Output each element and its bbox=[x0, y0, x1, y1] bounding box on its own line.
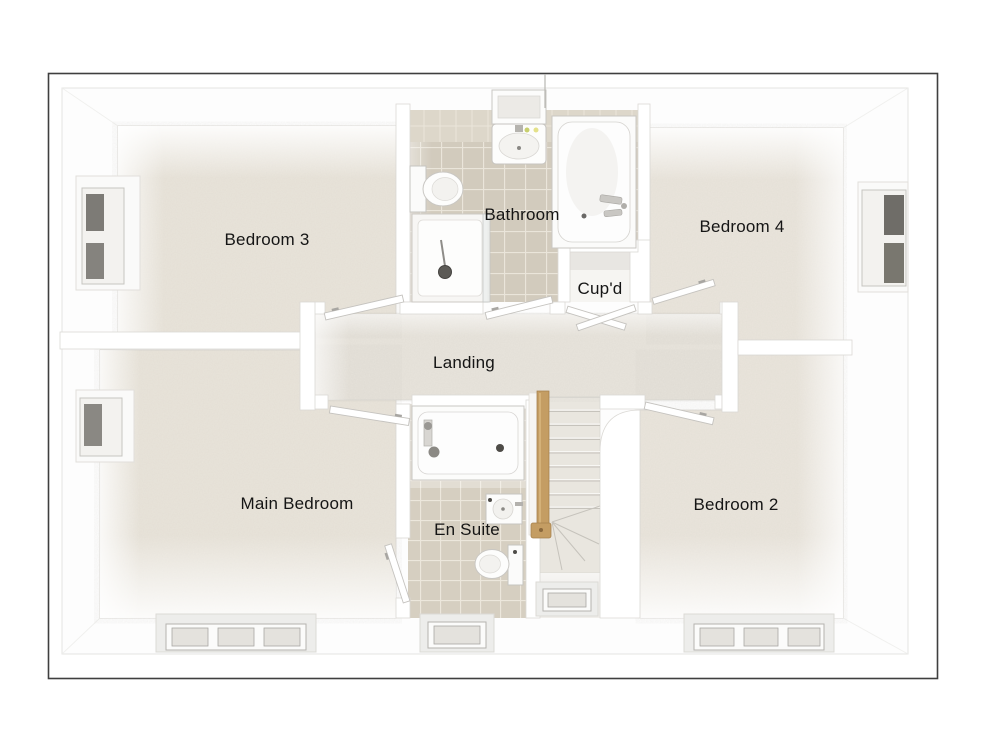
wall-cupboard-left bbox=[558, 248, 570, 302]
main-bedroom-front-window bbox=[156, 614, 316, 652]
bedroom-3-window bbox=[76, 176, 140, 290]
room-label-bedroom-3: Bedroom 3 bbox=[225, 230, 310, 250]
stair-balustrade bbox=[529, 393, 537, 535]
shower-enclosure bbox=[412, 214, 490, 302]
room-label-bathroom: Bathroom bbox=[484, 205, 559, 225]
shower-head bbox=[439, 266, 452, 279]
bedroom-2-window bbox=[684, 614, 834, 652]
wall-stairs-bed2 bbox=[600, 410, 640, 618]
bath-tap bbox=[621, 203, 627, 209]
floor-plan-drawing bbox=[0, 0, 1000, 750]
bedroom-4-window bbox=[858, 182, 908, 292]
main-bedroom-side-window bbox=[76, 390, 134, 462]
room-label-landing: Landing bbox=[433, 353, 495, 373]
shower-bath bbox=[412, 406, 524, 480]
shower-head bbox=[429, 447, 440, 458]
wall-landing-right-end bbox=[722, 302, 738, 412]
room-label-en-suite: En Suite bbox=[434, 520, 500, 540]
bathroom-sink bbox=[492, 124, 546, 164]
wall-bed3-mainbed bbox=[60, 332, 315, 349]
wall-bed3-bathroom bbox=[396, 104, 410, 302]
mirror-cabinet bbox=[492, 90, 546, 124]
floor-plan-page: Bedroom 3 Bathroom Bedroom 4 Cup'd Landi… bbox=[0, 0, 1000, 750]
handrail bbox=[537, 391, 549, 535]
wall-landing-left-end bbox=[300, 302, 315, 410]
room-label-bedroom-4: Bedroom 4 bbox=[700, 217, 785, 237]
room-label-main-bedroom: Main Bedroom bbox=[241, 494, 354, 514]
stairs-window bbox=[536, 582, 598, 616]
shower-glass-panel bbox=[483, 214, 490, 302]
room-label-cupboard: Cup'd bbox=[578, 279, 623, 299]
bathtub bbox=[552, 116, 636, 248]
room-label-bedroom-2: Bedroom 2 bbox=[694, 495, 779, 515]
wall-bed4-bed2 bbox=[738, 340, 852, 355]
en-suite-window bbox=[420, 614, 494, 652]
